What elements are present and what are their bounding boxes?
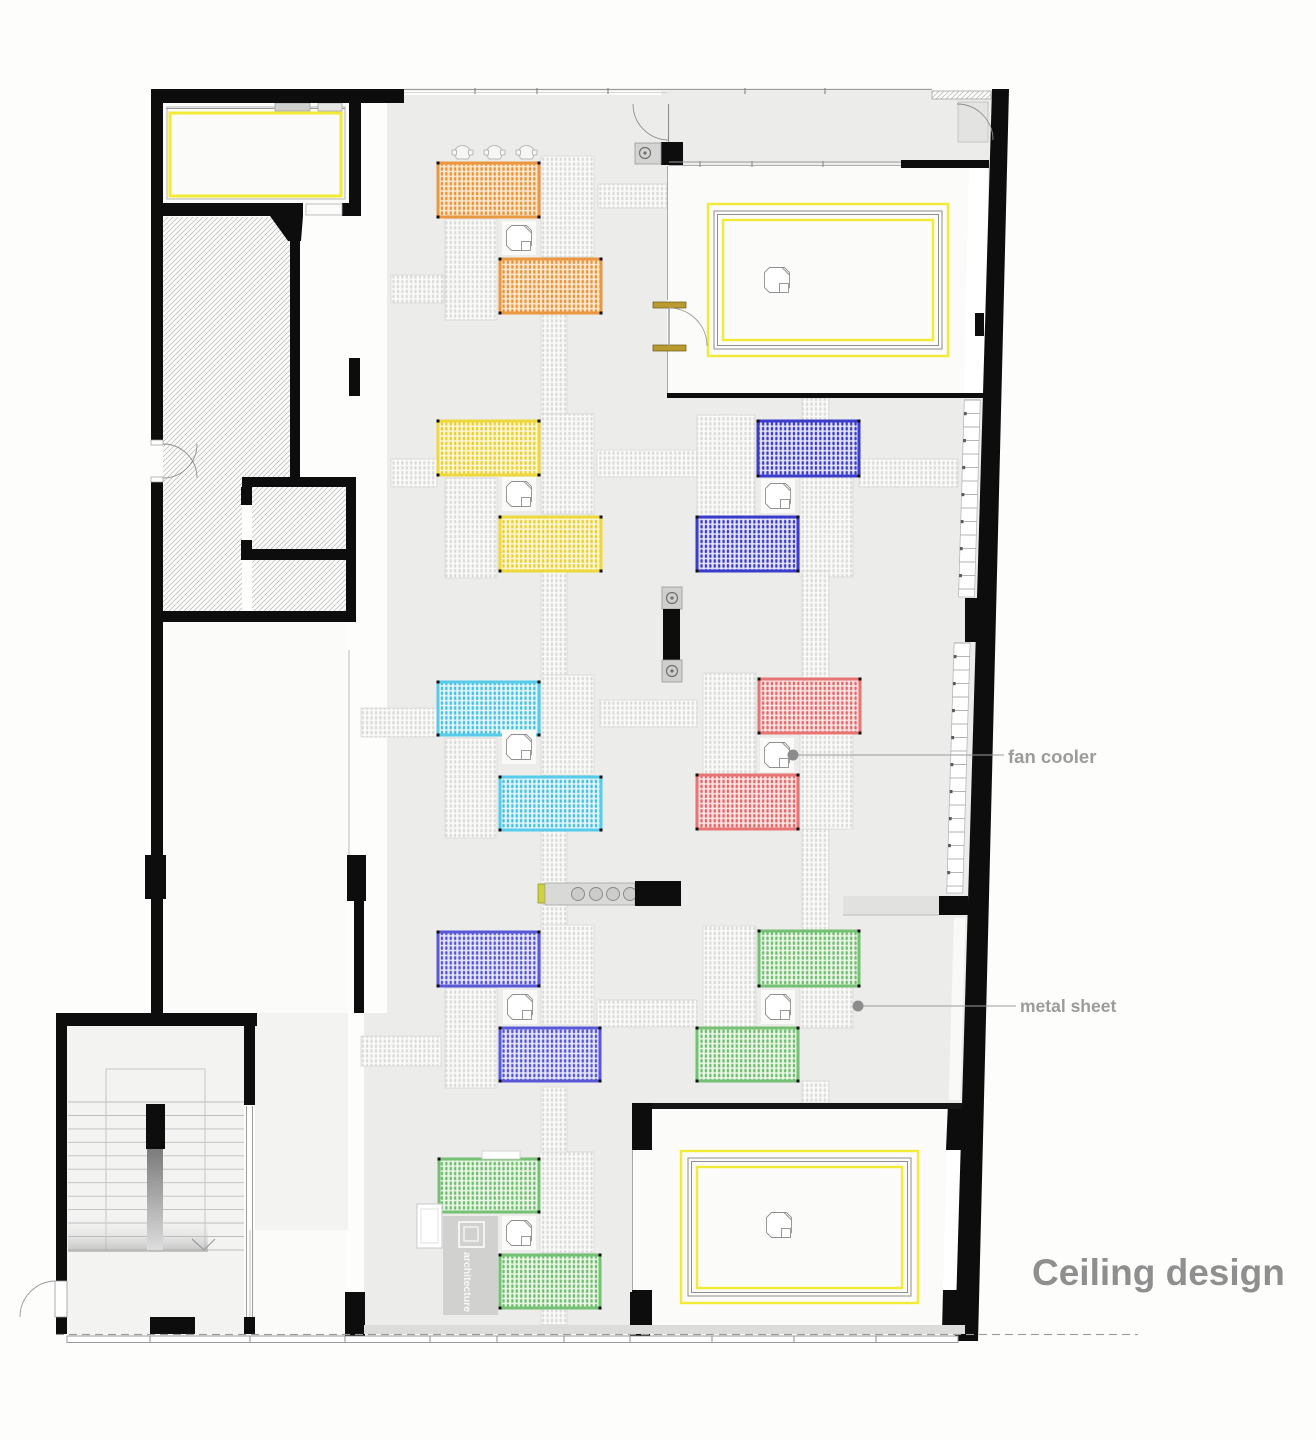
svg-text:Ceiling design: Ceiling design (1032, 1252, 1285, 1293)
svg-text:metal sheet: metal sheet (1020, 996, 1116, 1016)
svg-text:architecture: architecture (461, 1252, 473, 1312)
svg-text:fan cooler: fan cooler (1008, 746, 1096, 767)
